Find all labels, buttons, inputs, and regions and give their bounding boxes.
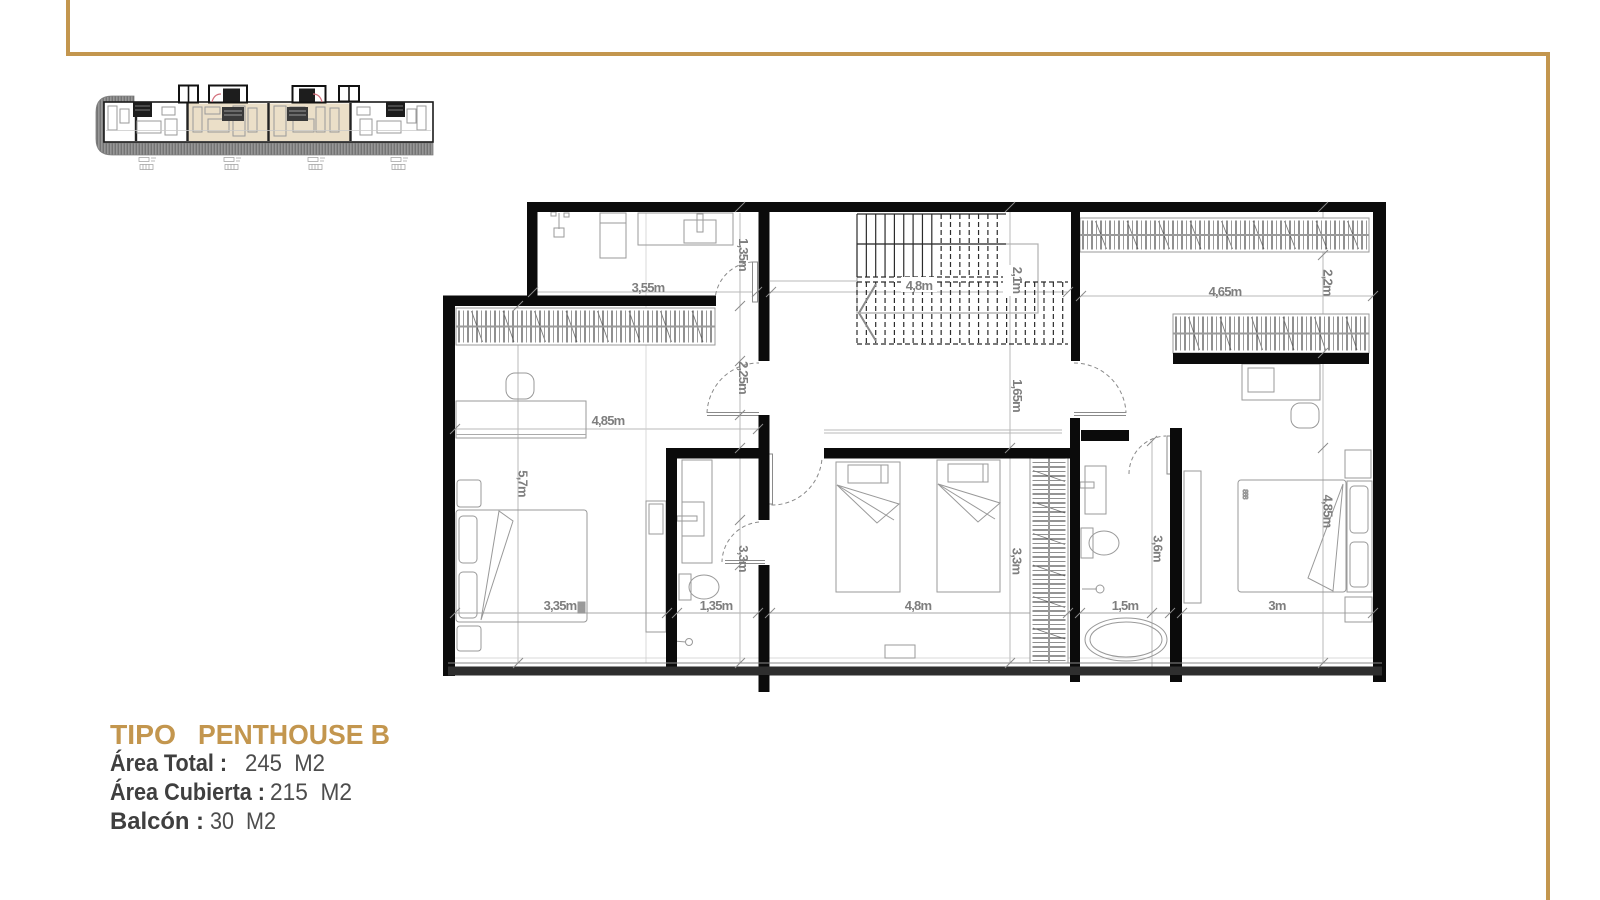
svg-text:Balcón :: Balcón :: [110, 808, 204, 835]
svg-text:3,35m: 3,35m: [544, 598, 577, 613]
svg-text:PENTHOUSE B: PENTHOUSE B: [198, 719, 390, 750]
svg-text:4,65m: 4,65m: [1209, 284, 1242, 299]
svg-text:TIPO: TIPO: [110, 719, 176, 750]
svg-text:2,25m: 2,25m: [736, 361, 751, 394]
svg-text:3,6m: 3,6m: [1151, 535, 1166, 562]
svg-text:1,5m: 1,5m: [1112, 598, 1139, 613]
svg-text:1,35m: 1,35m: [700, 598, 733, 613]
svg-text:2,2m: 2,2m: [1321, 269, 1336, 296]
svg-text:1,65m: 1,65m: [1010, 379, 1025, 412]
svg-text:2,1m: 2,1m: [1010, 267, 1025, 294]
svg-text:5,7m: 5,7m: [516, 470, 531, 497]
svg-text:3,3m: 3,3m: [736, 545, 751, 572]
svg-text:215 M2: 215 M2: [270, 779, 352, 806]
svg-text:Área Cubierta :: Área Cubierta :: [110, 778, 265, 806]
svg-text:245 M2: 245 M2: [245, 750, 325, 777]
svg-text:4,85m: 4,85m: [592, 413, 625, 428]
svg-text:Área Total :: Área Total :: [110, 749, 227, 777]
svg-text:888: 888: [1241, 489, 1248, 499]
svg-text:3m: 3m: [1268, 598, 1285, 613]
svg-text:3,55m: 3,55m: [632, 280, 665, 295]
svg-text:1,35m: 1,35m: [736, 238, 751, 271]
svg-text:4,8m: 4,8m: [906, 278, 933, 293]
svg-text:4,85m: 4,85m: [1321, 495, 1336, 528]
svg-text:4,8m: 4,8m: [905, 598, 932, 613]
svg-text:30 M2: 30 M2: [210, 808, 276, 835]
svg-text:3,3m: 3,3m: [1010, 548, 1025, 575]
